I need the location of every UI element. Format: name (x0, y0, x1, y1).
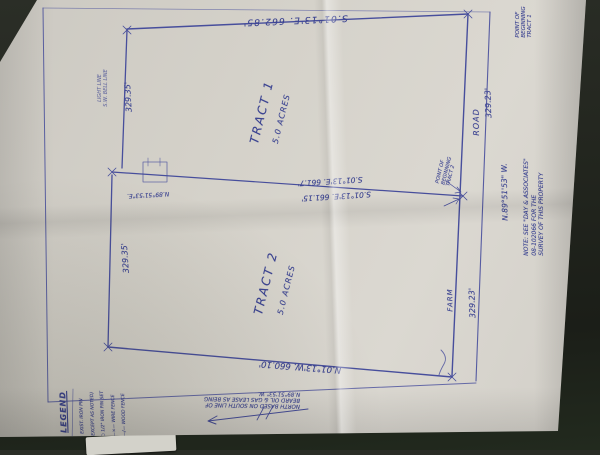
easement-jog-box (143, 162, 167, 182)
photo-of-survey-plat: S.01°13'E. 662.85' S.01°13'E. 661.7' S.0… (0, 0, 600, 450)
margin-note-line3: SURVEY OF THIS PROPERTY (538, 158, 546, 255)
margin-survey-note: NOTE: SEE "DAY & ASSOCIATES" 08-102066 F… (523, 158, 546, 255)
tract2-west-line (108, 175, 112, 347)
road-bearing-label: N.89°51'53" W. (501, 163, 510, 221)
tract1-west-dimension: 329.35' (124, 82, 134, 113)
road-east-line (476, 12, 490, 381)
tract1-road-frontage-dimension: 329.23' (484, 88, 493, 118)
border-left-line (43, 8, 48, 402)
se-corner-squiggle (439, 350, 445, 375)
pob-tract1-note: POINT OF BEGINNING TRACT 1 (515, 6, 533, 37)
legend-title: LEGEND (59, 391, 69, 433)
pob-tract1-line3: TRACT 1 (527, 6, 533, 37)
plat-line-drawing (0, 0, 600, 450)
tract2-road-frontage-dimension: 329.23' (468, 288, 477, 318)
paper-sliver (86, 433, 177, 455)
north-basis-note: NORTH BASED ON SOUTH LINE OF BEARD OIL &… (204, 389, 300, 409)
survey-paper: S.01°13'E. 662.85' S.01°13'E. 661.7' S.0… (0, 0, 600, 450)
legend-divider-line (72, 389, 73, 446)
legend-items: • EXIST. IRON PIN (EXCEPT AS NOTED) ○ 1/… (77, 390, 131, 438)
border-top-line (43, 8, 490, 12)
pob-arrow-2 (444, 198, 459, 206)
margin-note-line2: 08-102066 FOR THE (530, 158, 538, 255)
legend-item-wood-fence: —/— WOOD FENCE (119, 390, 131, 437)
margin-note-line1: NOTE: SEE "DAY & ASSOCIATES" (523, 158, 531, 255)
utility-note-line2: S.W. BELL LINE (103, 69, 109, 106)
north-arrow (208, 409, 308, 424)
utility-line-note: LIGHT LINE S.W. BELL LINE (97, 69, 109, 106)
road-label-lower: FARM (447, 288, 455, 311)
middle-line-west-bearing-label: N.89°51'53"E. (127, 190, 170, 199)
road-label-upper: ROAD (473, 108, 482, 136)
